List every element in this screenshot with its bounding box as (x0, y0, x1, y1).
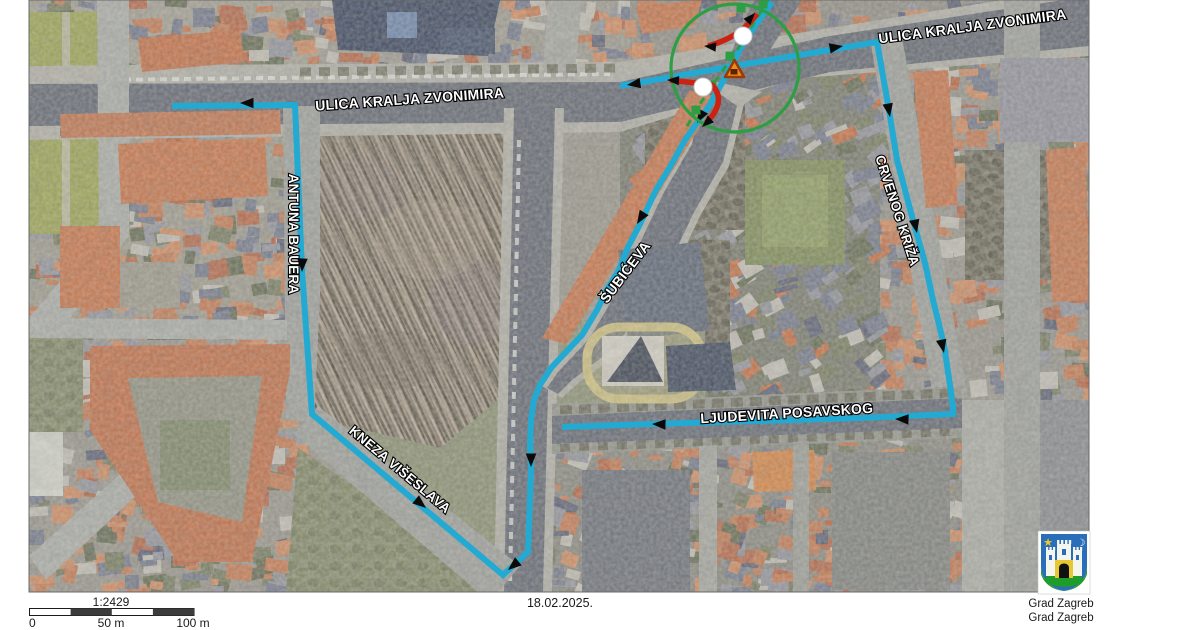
svg-text:18.02.2025.: 18.02.2025. (527, 596, 593, 610)
svg-text:ANTUNA BAUERA: ANTUNA BAUERA (286, 174, 301, 295)
svg-text:50 m: 50 m (98, 616, 125, 630)
svg-text:1:2429: 1:2429 (93, 595, 130, 609)
svg-text:100 m: 100 m (176, 616, 209, 630)
svg-text:Grad Zagreb: Grad Zagreb (1028, 612, 1093, 624)
svg-text:0: 0 (29, 616, 36, 630)
svg-text:Grad Zagreb: Grad Zagreb (1028, 598, 1093, 610)
